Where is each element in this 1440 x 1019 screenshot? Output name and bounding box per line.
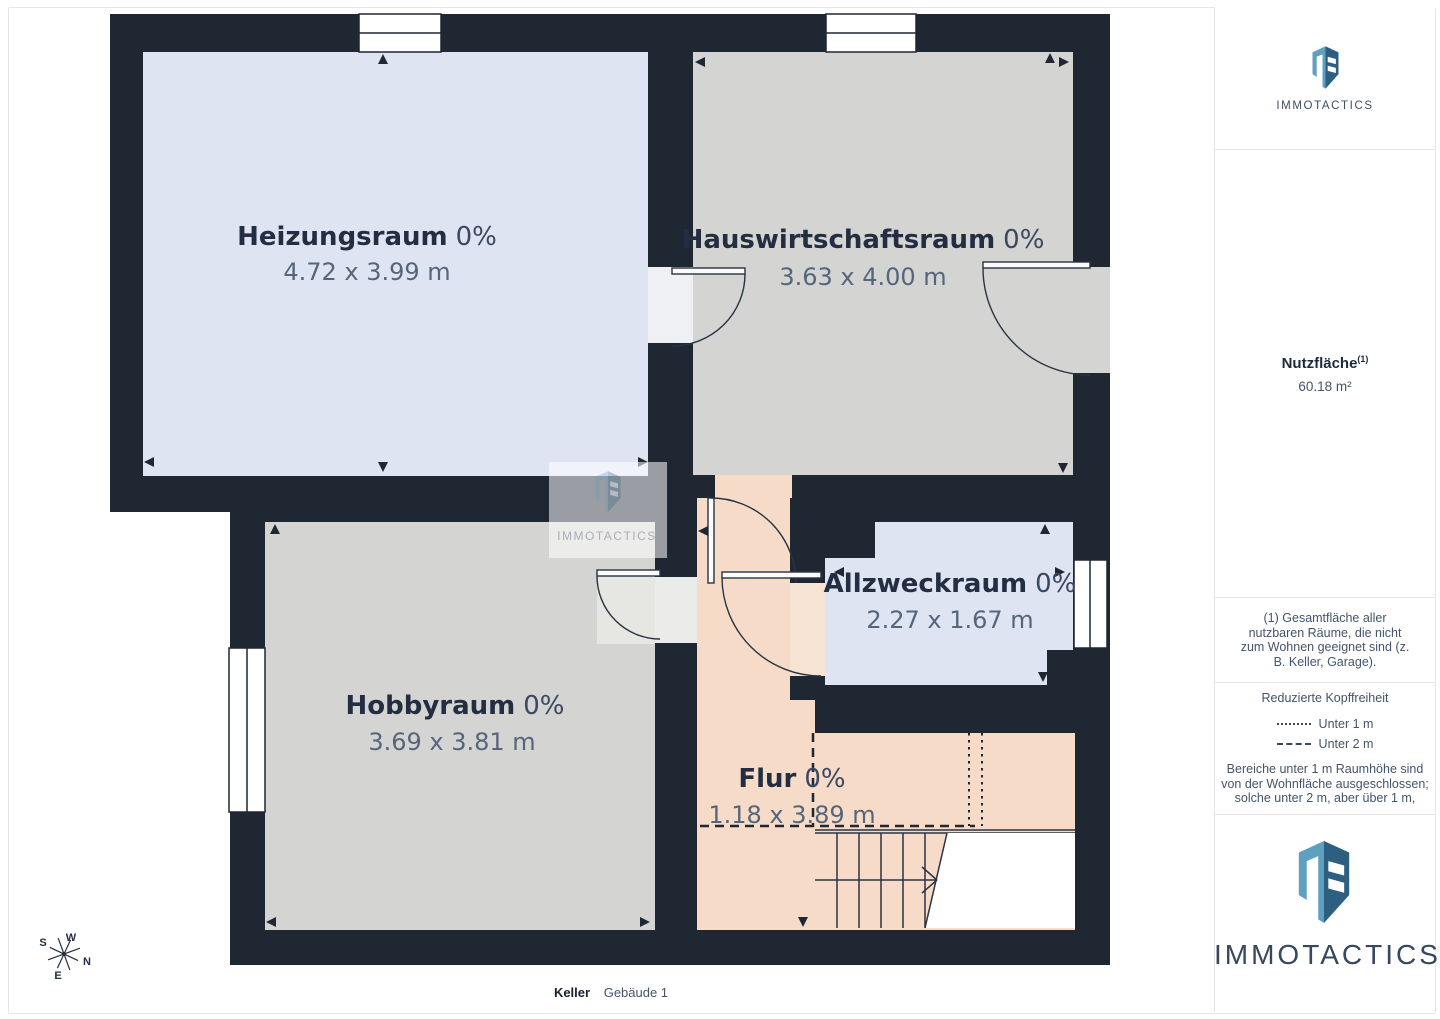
window-left-hobbyraum: [229, 648, 265, 812]
brand-name: IMMOTACTICS: [1276, 100, 1373, 112]
sidebar-brand-block: IMMOTACTICS: [1215, 7, 1435, 150]
label-heizungsraum: Heizungsraum0%: [237, 222, 497, 252]
stat-label: Nutzfläche(1): [1282, 354, 1369, 372]
floor-caption: Keller Gebäude 1: [8, 985, 1214, 1000]
compass-w: W: [66, 932, 77, 944]
brand-block-bottom: IMMOTACTICS: [1214, 838, 1434, 971]
brand-name-large: IMMOTACTICS: [1214, 939, 1434, 971]
sidebar-stats-block: Nutzfläche(1) 60.18 m²: [1215, 150, 1435, 598]
window-right-allzweckraum: [1074, 560, 1107, 648]
legend-item-under-2m: Unter 2 m: [1277, 737, 1374, 751]
compass-icon: W S N E: [39, 932, 91, 982]
label-hauswirtschaftsraum: Hauswirtschaftsraum0%: [682, 225, 1045, 255]
compass-n: N: [83, 956, 91, 968]
dims-hauswirtschaftsraum: 3.63 x 4.00 m: [779, 263, 946, 291]
legend-item-under-1m: Unter 1 m: [1277, 717, 1374, 731]
stat-label-superscript: (1): [1357, 354, 1368, 364]
stat-value: 60.18 m²: [1298, 379, 1351, 394]
window-top-heizungsraum: [359, 14, 441, 52]
footnote-text: (1) Gesamtfläche aller nutzbaren Räume, …: [1236, 611, 1414, 669]
compass-e: E: [54, 970, 61, 982]
room-hobbyraum: [265, 522, 655, 930]
dotted-line-icon: [1277, 723, 1311, 725]
immotactics-logo-icon: [1307, 45, 1344, 90]
legend-title: Reduzierte Kopffreiheit: [1262, 691, 1389, 705]
label-allzweckraum: Allzweckraum0%: [824, 569, 1077, 599]
legend-note: Bereiche unter 1 m Raumhöhe sind von der…: [1221, 762, 1429, 806]
floorplan-page: IMMOTACTICS Heizungsraum0% 4.72 x 3.99 m…: [0, 0, 1440, 1019]
floorplan-drawing: IMMOTACTICS Heizungsraum0% 4.72 x 3.99 m…: [0, 0, 1214, 1019]
caption-floor: Keller: [554, 985, 590, 1000]
label-flur: Flur0%: [738, 764, 845, 794]
dashed-line-icon: [1277, 743, 1311, 745]
dims-allzweckraum: 2.27 x 1.67 m: [866, 606, 1033, 634]
watermark-text: IMMOTACTICS: [557, 529, 657, 543]
label-hobbyraum: Hobbyraum0%: [345, 691, 564, 721]
dims-heizungsraum: 4.72 x 3.99 m: [283, 258, 450, 286]
sidebar-legend-block: Reduzierte Kopffreiheit Unter 1 m Unter …: [1215, 683, 1435, 815]
immotactics-logo-icon-large: [1288, 838, 1360, 926]
compass-s: S: [39, 937, 46, 949]
window-top-hauswirtschaftsraum: [826, 14, 916, 52]
watermark: IMMOTACTICS: [549, 462, 667, 558]
dims-hobbyraum: 3.69 x 3.81 m: [368, 728, 535, 756]
stairwell-void: [925, 833, 1075, 928]
sidebar-footnote-block: (1) Gesamtfläche aller nutzbaren Räume, …: [1215, 598, 1435, 683]
caption-building: Gebäude 1: [604, 985, 668, 1000]
dims-flur: 1.18 x 3.89 m: [708, 801, 875, 829]
